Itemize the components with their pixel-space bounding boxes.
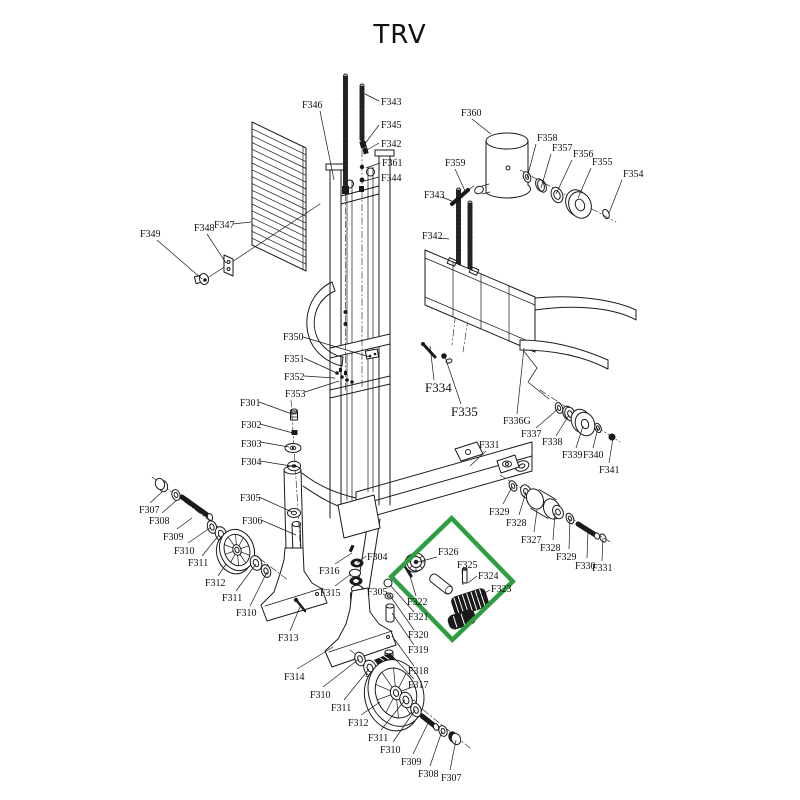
part-label-F350: F350: [283, 332, 304, 343]
leader-line-F303: [260, 442, 289, 447]
part-label-F316: F316: [319, 566, 340, 577]
part-label-F309: F309: [163, 532, 184, 543]
part-label-F336G: F336G: [503, 416, 531, 427]
part-label-F303: F303: [241, 439, 262, 450]
part-label-F311: F311: [188, 558, 208, 569]
leader-line-F305: [259, 497, 292, 512]
leader-line-F306: [261, 520, 296, 535]
part-label-F326: F326: [438, 547, 459, 558]
leader-line-F304: [260, 461, 291, 466]
part-label-F319: F319: [408, 645, 429, 656]
part-label-F306: F306: [242, 516, 263, 527]
part-label-F338: F338: [542, 437, 563, 448]
chassis-roller-train: [500, 475, 612, 543]
diagram-canvas: F346F343F345F342F361F344F360F358F357F356…: [0, 0, 800, 800]
part-label-F304: F304: [367, 552, 388, 563]
leader-line-F301: [259, 402, 292, 414]
fork-carriage: [425, 250, 636, 369]
part-label-F351: F351: [284, 354, 305, 365]
part-label-F345: F345: [381, 120, 402, 131]
part-label-F352: F352: [284, 372, 305, 383]
leader-line-F330: [587, 531, 588, 558]
left-leg-boot: [261, 548, 327, 621]
part-label-F342: F342: [381, 139, 402, 150]
part-label-F331: F331: [479, 440, 500, 451]
part-label-F310: F310: [380, 745, 401, 756]
leader-line-F337: [536, 409, 558, 428]
part-label-F305: F305: [367, 587, 388, 598]
part-label-F334: F334: [425, 380, 452, 395]
part-label-F323: F323: [491, 584, 512, 595]
part-label-F361: F361: [382, 158, 403, 169]
leader-line-F357: [541, 154, 551, 188]
part-label-F327: F327: [521, 535, 542, 546]
part-label-F357: F357: [552, 143, 573, 154]
part-label-F344: F344: [381, 173, 402, 184]
part-label-F321: F321: [408, 612, 429, 623]
part-label-F311: F311: [222, 593, 242, 604]
leader-line-F353: [305, 381, 339, 392]
part-label-F343: F343: [424, 190, 445, 201]
part-label-F342: F342: [422, 231, 443, 242]
part-label-F301: F301: [240, 398, 261, 409]
leader-line-F356: [556, 160, 572, 194]
part-label-F349: F349: [140, 229, 161, 240]
exploded-parts-diagram: TRV: [0, 0, 800, 800]
leader-line-F347: [233, 222, 251, 224]
part-label-F343: F343: [381, 97, 402, 108]
leader-line-F341: [609, 438, 613, 463]
lower-fork: [520, 340, 608, 369]
part-label-F335: F335: [451, 404, 478, 419]
part-label-F302: F302: [241, 420, 262, 431]
part-label-F340: F340: [583, 450, 604, 461]
leader-line-F329: [503, 487, 512, 504]
leader-line-F343: [365, 94, 379, 101]
left-wheel-assembly: [152, 477, 288, 580]
part-label-F346: F346: [302, 100, 323, 111]
leader-line-F351: [304, 358, 339, 374]
leader-line-F354: [609, 180, 622, 213]
leader-line-F316: [335, 553, 352, 564]
carriage-pin-parts: [421, 342, 453, 364]
part-label-F355: F355: [592, 157, 613, 168]
part-label-F309: F309: [401, 757, 422, 768]
leader-line-F334: [430, 346, 434, 380]
part-label-F311: F311: [331, 703, 351, 714]
leader-line-F327: [534, 510, 537, 532]
leader-line-F349: [157, 240, 202, 279]
part-label-F353: F353: [285, 389, 306, 400]
leader-line-F345: [364, 125, 379, 145]
part-label-F310: F310: [310, 690, 331, 701]
leader-line-F310: [188, 528, 210, 543]
part-label-F337: F337: [521, 429, 542, 440]
part-label-F329: F329: [556, 552, 577, 563]
part-label-F354: F354: [623, 169, 644, 180]
leader-line-F360: [472, 119, 491, 134]
hydraulic-cylinder: [452, 133, 616, 222]
part-label-F325: F325: [457, 560, 478, 571]
mast: [326, 150, 394, 518]
leader-line-F308: [162, 500, 177, 513]
part-label-F331: F331: [592, 563, 613, 574]
part-label-F312: F312: [348, 718, 369, 729]
leader-line-F302: [260, 424, 293, 433]
part-label-F310: F310: [174, 546, 195, 557]
part-label-F356: F356: [573, 149, 594, 160]
part-label-F308: F308: [418, 769, 439, 780]
leader-line-F307: [150, 491, 163, 503]
leader-line-F338: [556, 415, 569, 436]
upper-fork: [535, 297, 636, 320]
mesh-panel: [252, 122, 306, 271]
part-label-F348: F348: [194, 223, 215, 234]
part-label-F311: F311: [368, 733, 388, 744]
leader-line-F308: [430, 731, 442, 766]
part-label-F310: F310: [236, 608, 257, 619]
part-label-F324: F324: [478, 571, 499, 582]
part-label-F322: F322: [407, 597, 428, 608]
part-label-F307: F307: [139, 505, 160, 516]
part-label-F359: F359: [445, 158, 466, 169]
leader-line-F342: [367, 143, 379, 150]
leader-line-F322: [410, 576, 416, 596]
part-label-F315: F315: [320, 588, 341, 599]
part-label-F314: F314: [284, 672, 305, 683]
part-label-F307: F307: [441, 773, 462, 784]
part-label-F320: F320: [408, 630, 429, 641]
leader-line-F309: [413, 723, 428, 754]
part-label-F304: F304: [241, 457, 262, 468]
part-label-F317: F317: [408, 680, 429, 691]
part-label-F312: F312: [205, 578, 226, 589]
part-label-F347: F347: [214, 220, 235, 231]
part-label-F360: F360: [461, 108, 482, 119]
part-label-F329: F329: [489, 507, 510, 518]
leader-line-F336G: [517, 348, 524, 414]
leader-line-F344: [364, 177, 379, 181]
leader-line-F307: [450, 740, 456, 770]
leader-line-F309: [177, 518, 192, 529]
part-label-F339: F339: [562, 450, 583, 461]
part-label-F305: F305: [240, 493, 261, 504]
part-label-F313: F313: [278, 633, 299, 644]
part-label-F341: F341: [599, 465, 620, 476]
part-label-F318: F318: [408, 666, 429, 677]
part-label-F308: F308: [149, 516, 170, 527]
leader-line-F324: [468, 576, 477, 583]
leader-line-F348: [207, 234, 226, 263]
part-label-F328: F328: [506, 518, 527, 529]
